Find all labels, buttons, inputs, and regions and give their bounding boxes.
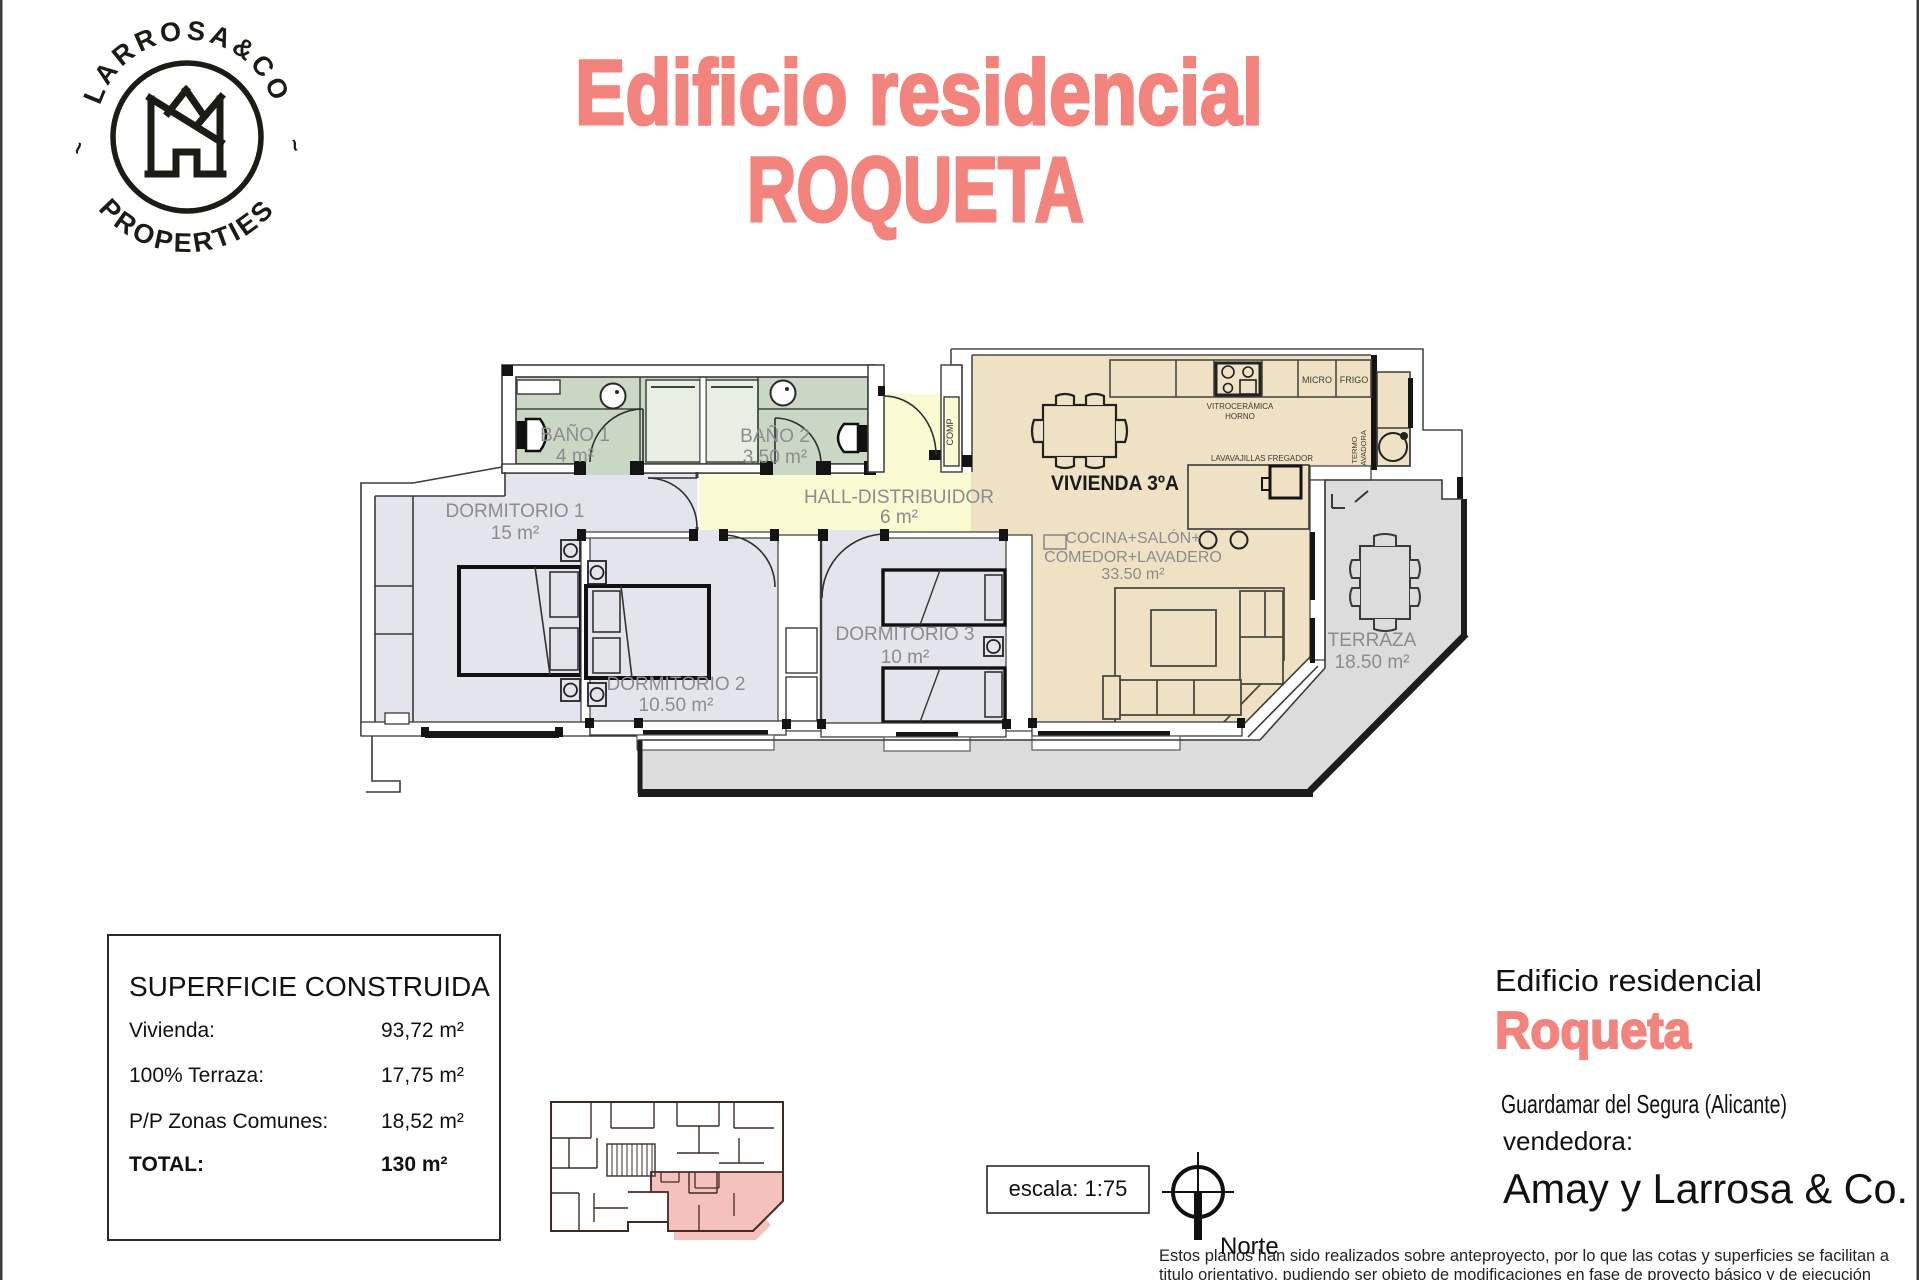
svg-text:93,72 m²: 93,72 m²: [381, 1019, 464, 1042]
svg-text:3.50 m²: 3.50 m²: [743, 447, 807, 468]
svg-text:HALL-DISTRIBUIDOR: HALL-DISTRIBUIDOR: [804, 487, 994, 508]
svg-text:Edificio residencial: Edificio residencial: [1495, 963, 1762, 998]
svg-text:6 m²: 6 m²: [880, 507, 918, 528]
svg-text:Amay y Larrosa & Co.: Amay y Larrosa & Co.: [1503, 1165, 1908, 1212]
svg-text:TERRAZA: TERRAZA: [1328, 630, 1417, 651]
svg-text:TOTAL:: TOTAL:: [129, 1153, 204, 1176]
svg-text:VITROCERÁMICA: VITROCERÁMICA: [1207, 402, 1274, 411]
svg-text:COMEDOR+LAVADERO: COMEDOR+LAVADERO: [1044, 549, 1222, 566]
svg-text:DORMITORIO 3: DORMITORIO 3: [836, 624, 975, 645]
svg-text:18.50 m²: 18.50 m²: [1335, 652, 1410, 673]
svg-text:Vivienda:: Vivienda:: [129, 1019, 215, 1042]
svg-text:HORNO: HORNO: [1225, 412, 1255, 421]
svg-text:VIVIENDA 3ºA: VIVIENDA 3ºA: [1051, 472, 1179, 495]
svg-text:TERMO: TERMO: [1350, 436, 1359, 463]
svg-text:Estos planos han sido realizad: Estos planos han sido realizados sobre a…: [1159, 1247, 1890, 1265]
svg-text:escala: 1:75: escala: 1:75: [1009, 1176, 1128, 1201]
svg-text:130 m²: 130 m²: [381, 1153, 448, 1176]
svg-text:18,52 m²: 18,52 m²: [381, 1110, 464, 1133]
svg-text:vendedora:: vendedora:: [1503, 1126, 1633, 1156]
svg-text:10 m²: 10 m²: [881, 647, 930, 668]
svg-text:10.50 m²: 10.50 m²: [639, 695, 714, 716]
svg-text:LAVADORA: LAVADORA: [1359, 430, 1368, 470]
svg-text:4 m²: 4 m²: [556, 446, 594, 467]
svg-text:DORMITORIO 2: DORMITORIO 2: [607, 674, 746, 695]
svg-text:100% Terraza:: 100% Terraza:: [129, 1064, 264, 1087]
svg-text:17,75 m²: 17,75 m²: [381, 1064, 464, 1087]
svg-text:titulo orientativo, pudiendo s: titulo orientativo, pudiendo ser objeto …: [1159, 1266, 1871, 1280]
svg-text:DORMITORIO 1: DORMITORIO 1: [446, 501, 585, 522]
svg-text:Guardamar del Segura (Alicante: Guardamar del Segura (Alicante): [1501, 1089, 1787, 1119]
svg-text:FRIGO: FRIGO: [1340, 375, 1369, 385]
svg-text:ROQUETA: ROQUETA: [747, 139, 1084, 241]
svg-text:COCINA+SALÓN+: COCINA+SALÓN+: [1065, 528, 1200, 547]
svg-text:15 m²: 15 m²: [491, 523, 540, 544]
svg-text:BAÑO 1: BAÑO 1: [540, 424, 610, 446]
svg-text:P/P Zonas Comunes:: P/P Zonas Comunes:: [129, 1110, 328, 1133]
svg-text:SUPERFICIE CONSTRUIDA: SUPERFICIE CONSTRUIDA: [129, 971, 490, 1002]
svg-text:LAVAVAJILLAS FREGADOR: LAVAVAJILLAS FREGADOR: [1211, 454, 1313, 463]
svg-text:Roqueta: Roqueta: [1495, 1002, 1692, 1060]
svg-text:33.50 m²: 33.50 m²: [1101, 566, 1165, 583]
svg-text:MICRO: MICRO: [1302, 375, 1332, 385]
svg-text:BAÑO 2: BAÑO 2: [740, 425, 810, 447]
svg-text:COMP: COMP: [945, 419, 955, 446]
svg-text:Edificio residencial: Edificio residencial: [575, 42, 1263, 144]
